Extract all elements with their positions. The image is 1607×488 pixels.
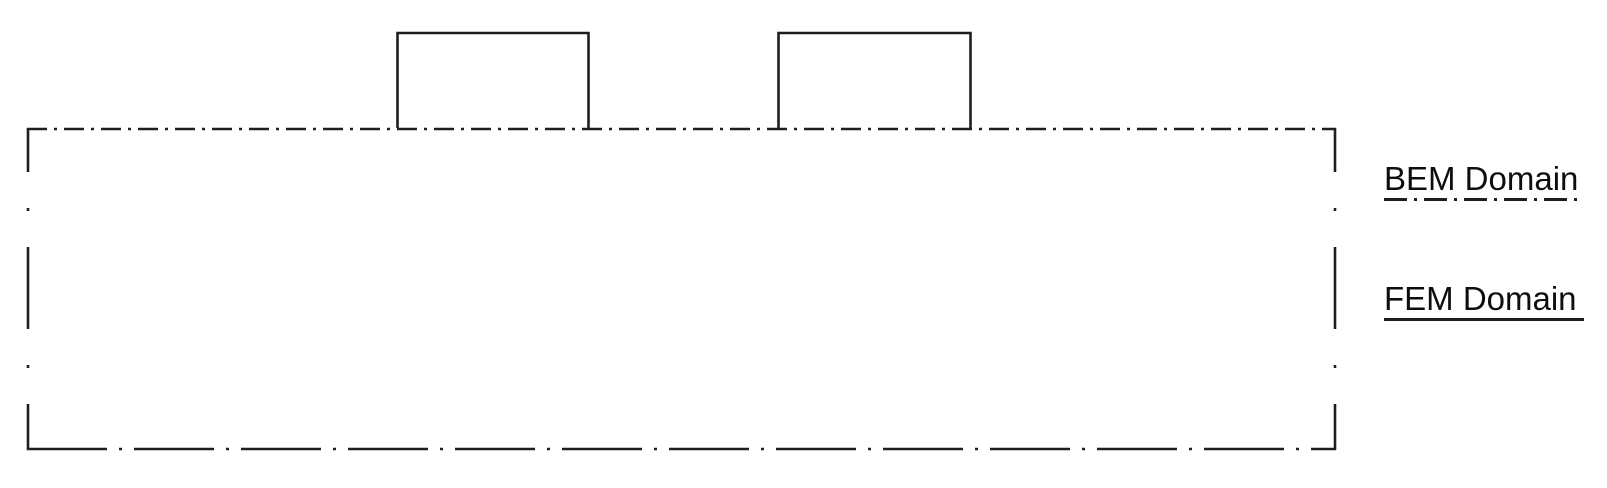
bem-domain-label: BEM Domain [1384,162,1588,201]
fem-domain-label-text: FEM Domain [1384,282,1588,316]
fem-box-2 [779,33,971,128]
figure-canvas: BEM Domain FEM Domain [0,0,1607,488]
fem-box-1 [398,33,589,128]
bem-domain-label-text: BEM Domain [1384,162,1588,196]
fem-domain-label: FEM Domain [1384,282,1588,321]
fem-bem-diagram [0,0,1607,488]
fem-solid-underline [1384,318,1584,321]
bem-dashdot-underline [1384,198,1584,201]
